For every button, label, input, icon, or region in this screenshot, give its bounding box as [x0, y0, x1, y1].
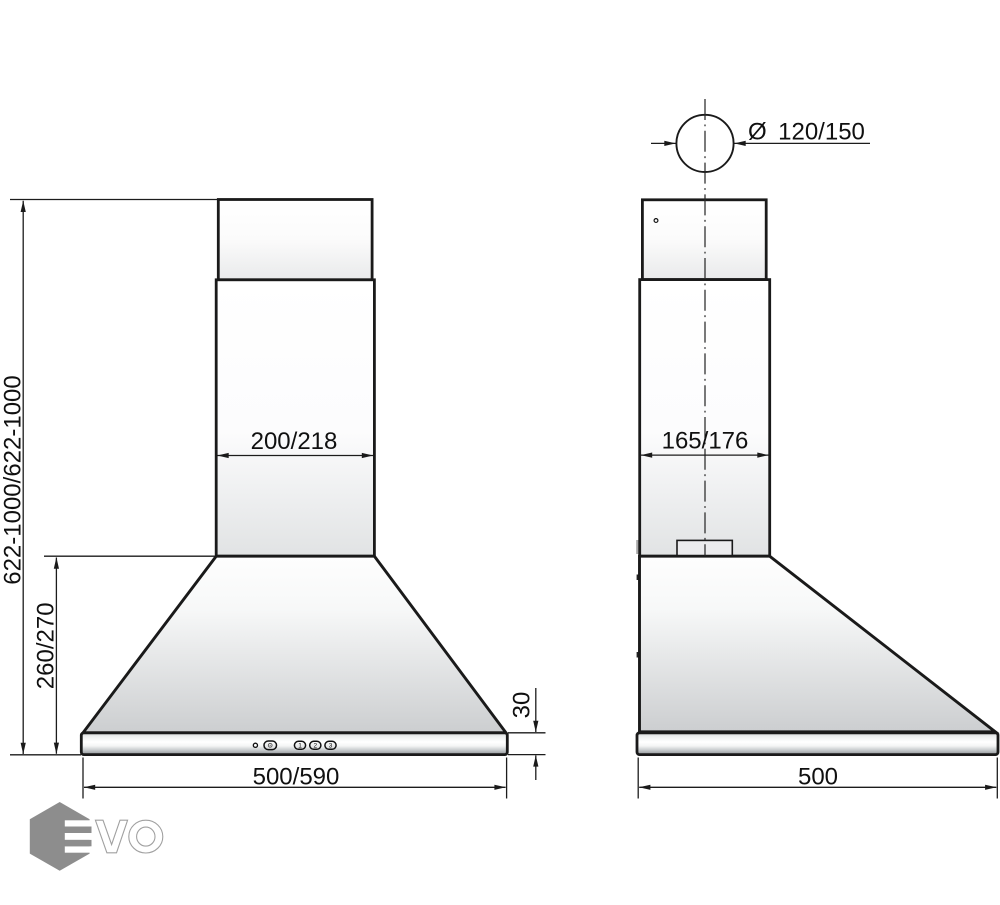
svg-text:500: 500 — [798, 764, 838, 791]
svg-text:Ø 120/150: Ø 120/150 — [748, 119, 865, 146]
svg-text:3: 3 — [329, 743, 333, 750]
svg-text:30: 30 — [509, 692, 536, 719]
svg-text:165/176: 165/176 — [662, 428, 749, 455]
svg-text:260/270: 260/270 — [33, 602, 60, 689]
svg-text:200/218: 200/218 — [251, 428, 338, 455]
svg-text:500/590: 500/590 — [253, 764, 340, 791]
svg-text:622-1000/622-1000: 622-1000/622-1000 — [0, 375, 27, 585]
svg-text:1: 1 — [298, 743, 302, 750]
svg-text:2: 2 — [313, 743, 317, 750]
